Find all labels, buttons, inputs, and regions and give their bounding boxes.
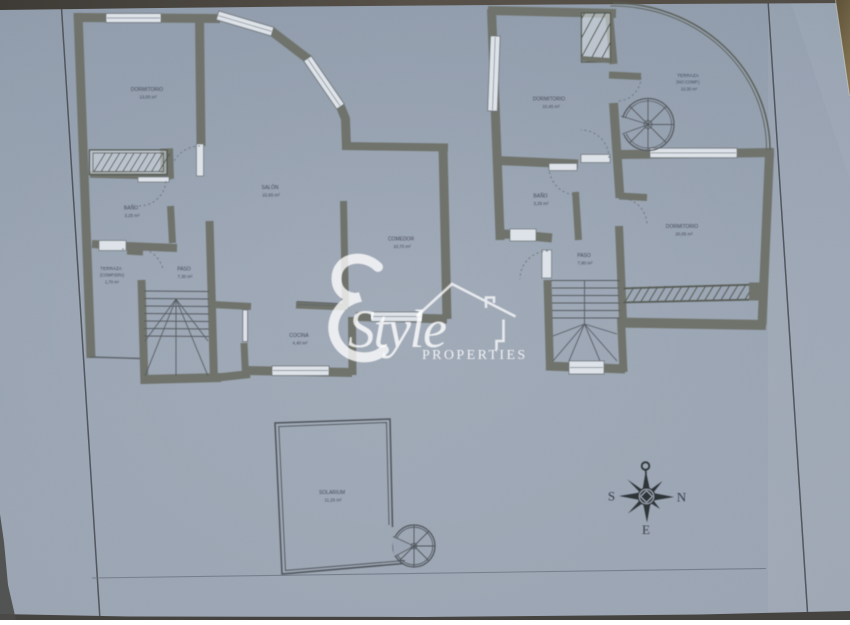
svg-text:4,40 m²: 4,40 m² bbox=[293, 341, 308, 346]
svg-text:(COMP.50%): (COMP.50%) bbox=[100, 273, 125, 278]
svg-text:PROPERTIES: PROPERTIES bbox=[422, 348, 528, 363]
svg-text:3,25 m²: 3,25 m² bbox=[125, 213, 140, 218]
svg-text:SOLARIUM: SOLARIUM bbox=[319, 490, 345, 496]
svg-text:DORMITORIO: DORMITORIO bbox=[131, 87, 164, 93]
svg-text:3,25 m²: 3,25 m² bbox=[534, 201, 549, 206]
svg-text:COCINA: COCINA bbox=[289, 333, 309, 339]
svg-text:PASO: PASO bbox=[577, 253, 591, 259]
svg-text:PASO: PASO bbox=[177, 267, 191, 273]
svg-text:DORMITORIO: DORMITORIO bbox=[666, 224, 699, 230]
svg-text:E: E bbox=[642, 522, 650, 537]
svg-text:TERRAZA: TERRAZA bbox=[100, 266, 122, 271]
svg-text:BAÑO: BAÑO bbox=[533, 193, 547, 200]
svg-text:DORMITORIO: DORMITORIO bbox=[533, 97, 566, 103]
svg-text:22,65 m²: 22,65 m² bbox=[262, 193, 280, 198]
svg-text:(NO COMP.): (NO COMP.) bbox=[676, 80, 700, 85]
svg-text:13,00 m²: 13,00 m² bbox=[139, 95, 157, 100]
svg-text:11,25 m²: 11,25 m² bbox=[324, 498, 342, 503]
svg-text:7,30 m²: 7,30 m² bbox=[178, 274, 193, 279]
svg-text:10,30 m²: 10,30 m² bbox=[681, 87, 698, 92]
svg-text:7,80 m²: 7,80 m² bbox=[578, 261, 593, 266]
svg-text:TERRAZA: TERRAZA bbox=[677, 73, 699, 78]
svg-text:N: N bbox=[677, 490, 687, 505]
svg-text:10,45 m²: 10,45 m² bbox=[542, 104, 560, 109]
svg-text:COMEDOR: COMEDOR bbox=[388, 237, 415, 243]
svg-text:SALÓN: SALÓN bbox=[262, 184, 279, 191]
svg-text:1,70 m²: 1,70 m² bbox=[105, 280, 120, 285]
svg-text:S: S bbox=[608, 489, 615, 504]
svg-text:BAÑO: BAÑO bbox=[124, 205, 138, 212]
svg-text:20,05 m²: 20,05 m² bbox=[675, 232, 693, 237]
svg-text:10,70 m²: 10,70 m² bbox=[393, 244, 411, 249]
